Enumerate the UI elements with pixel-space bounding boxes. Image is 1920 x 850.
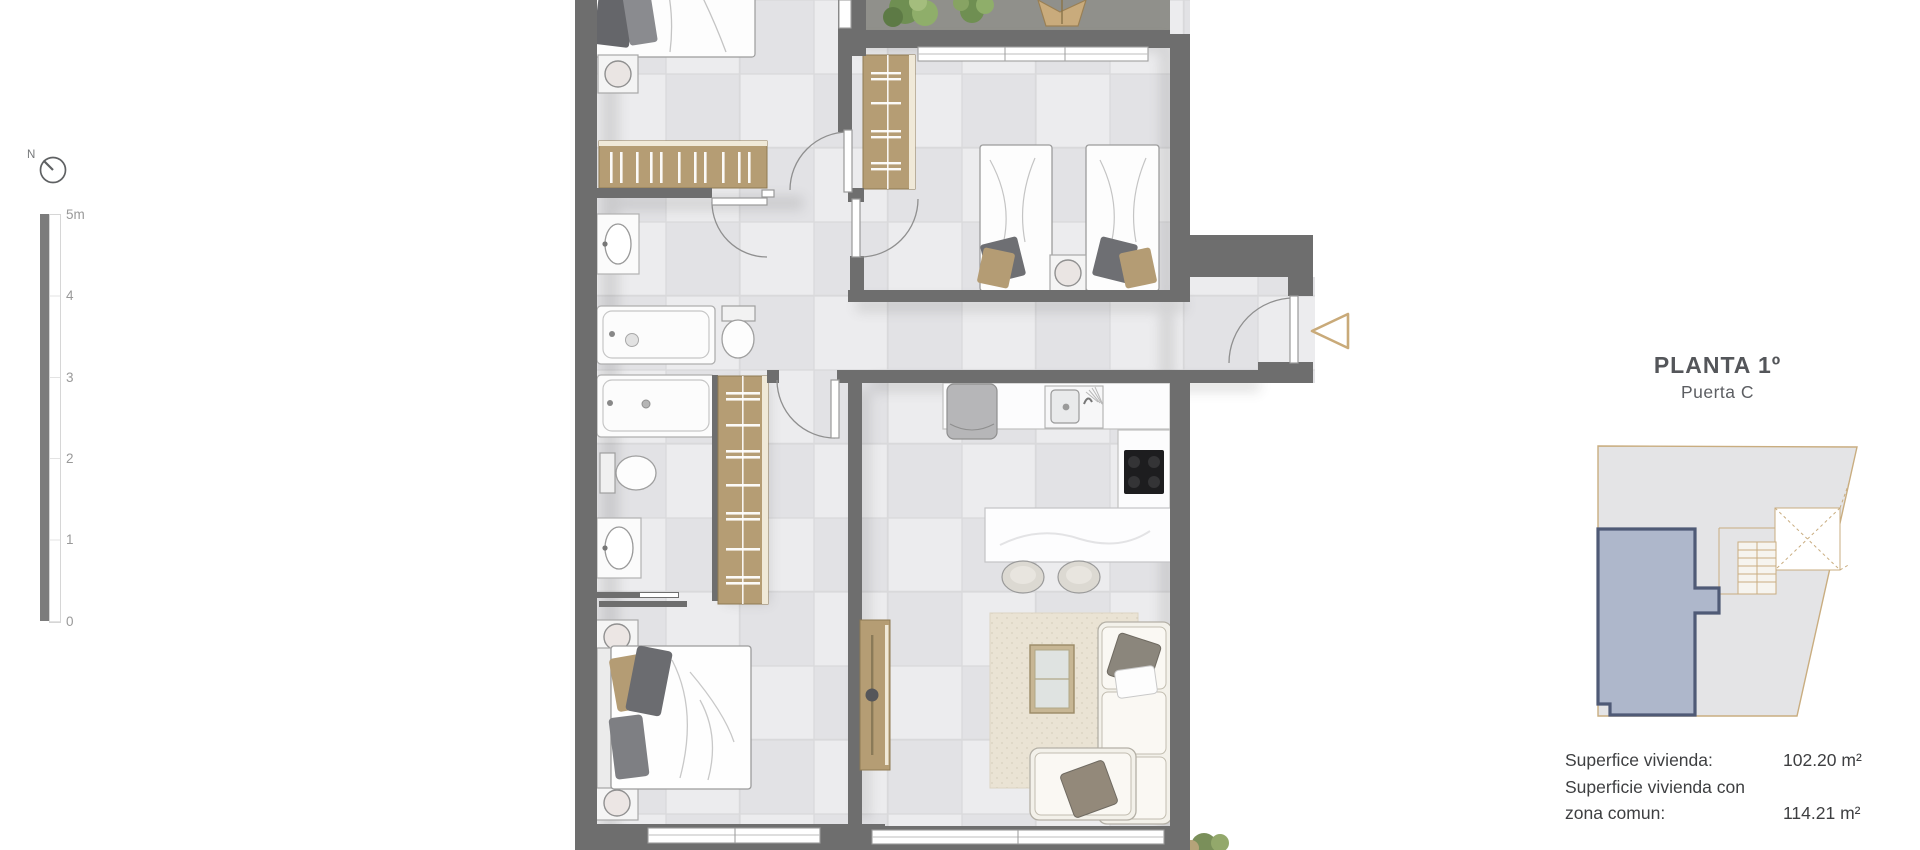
toilet-tank <box>600 453 615 493</box>
entrance-arrow-icon <box>1312 314 1348 348</box>
door-twin-bedroom <box>852 199 860 257</box>
compass-icon: N <box>22 144 78 190</box>
plan-header: PLANTA 1º Puerta C <box>1575 352 1860 403</box>
stat-label: Superficie vivienda con <box>1565 777 1745 798</box>
pillow <box>1114 665 1158 698</box>
wall-vestibule <box>1188 235 1313 277</box>
scale-label: 2 <box>66 451 100 466</box>
lamp <box>604 790 630 816</box>
dressing-area <box>712 375 768 604</box>
toilet <box>722 320 754 358</box>
window-living <box>872 830 1164 844</box>
coffee-table <box>1030 645 1074 713</box>
window-small <box>839 0 851 28</box>
door-dressing <box>831 380 839 438</box>
window-master-bedroom <box>648 828 820 843</box>
stat-value: 114.21 m² <box>1783 803 1861 824</box>
bed-twin-1 <box>977 145 1052 291</box>
kitchen-sink <box>1045 386 1103 428</box>
toilet-tank <box>722 306 755 321</box>
door-knob <box>866 689 879 702</box>
toilet <box>616 456 656 490</box>
wall-right <box>1170 34 1190 290</box>
door-bathroom-1 <box>712 198 767 205</box>
wall-terrace <box>852 30 1170 48</box>
window-terrace <box>918 47 1148 61</box>
wall-right-lower <box>1170 370 1190 850</box>
stool <box>1002 561 1044 593</box>
stool <box>1058 561 1100 593</box>
scale-label: 4 <box>66 288 100 303</box>
floorplan-sheet: N 5m 4 3 2 1 0 PLANTA 1º Puerta C <box>0 0 1920 850</box>
scale-bar: 5m 4 3 2 1 0 <box>40 214 110 624</box>
sink <box>605 527 633 569</box>
page-title: PLANTA 1º <box>1575 352 1860 379</box>
wall-twin-corridor <box>848 290 1190 302</box>
page-subtitle: Puerta C <box>1575 382 1860 403</box>
sliding-door-wood <box>860 620 890 770</box>
scale-label: 3 <box>66 370 100 385</box>
wardrobe-bedroom-1 <box>599 141 767 188</box>
door-bedroom-1 <box>844 130 852 192</box>
bed-twin-2 <box>1086 145 1159 291</box>
scale-label: 0 <box>66 614 100 629</box>
stat-value: 102.20 m² <box>1783 750 1862 771</box>
wardrobe-dressing <box>718 376 768 604</box>
floor-plan <box>0 0 1920 850</box>
scale-label: 1 <box>66 532 100 547</box>
bed-master <box>597 645 751 789</box>
fridge <box>947 384 997 439</box>
wall-kitchen <box>863 370 1263 383</box>
wall-left-exterior <box>575 0 597 850</box>
compass-north-label: N <box>27 149 35 161</box>
lamp <box>1055 260 1081 286</box>
lamp <box>605 61 631 87</box>
sink <box>605 224 631 264</box>
scale-bar-rule <box>40 214 49 621</box>
stat-label: zona comun: <box>1565 803 1665 824</box>
plant <box>883 0 938 27</box>
scale-bar-ticks <box>49 214 61 623</box>
cooktop <box>1124 450 1164 494</box>
bathtub <box>597 375 715 437</box>
door-entry <box>1290 296 1298 363</box>
key-plan <box>1588 428 1920 720</box>
scale-label: 5m <box>66 207 100 222</box>
stat-label: Superfice vivienda: <box>1565 750 1713 771</box>
wardrobe-twin <box>863 55 915 189</box>
